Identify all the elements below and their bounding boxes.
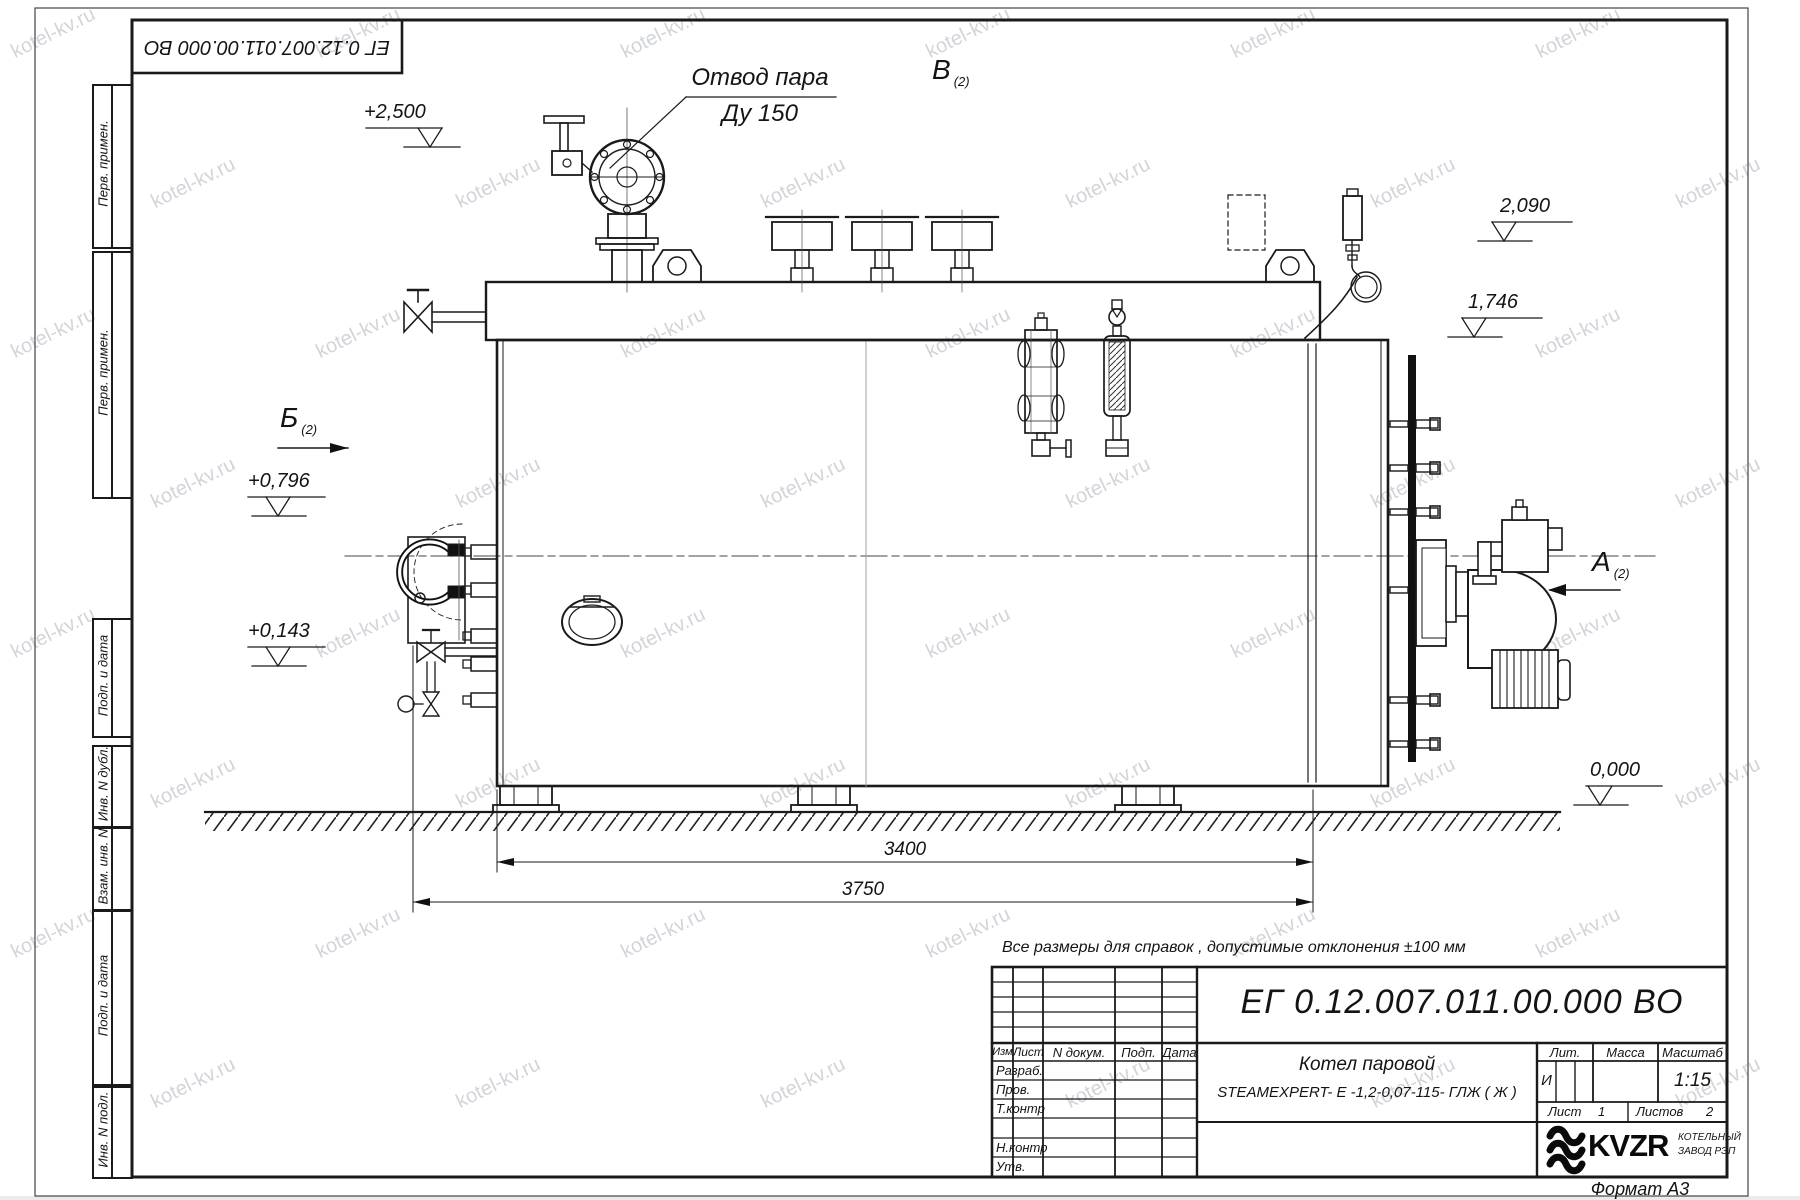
tb-list-value: 1 bbox=[1598, 1104, 1605, 1119]
dim-3750: 3750 bbox=[813, 879, 913, 901]
format-label: Формат А3 bbox=[1540, 1179, 1740, 1200]
tb-doc-number: ЕГ 0.12.007.011.00.000 ВО bbox=[1200, 983, 1724, 1022]
margin-label-perv-primen-2: Перв. примен. bbox=[96, 313, 111, 433]
tb-col-data: Дата bbox=[1162, 1045, 1197, 1060]
burner-assembly bbox=[1416, 500, 1570, 708]
margin-label-inv-podl: Инв. N подл. bbox=[96, 1070, 111, 1190]
kvzr-logo-text: KVZR bbox=[1588, 1128, 1668, 1164]
tb-product-name-line2: STEAMEXPERT- Е -1,2-0,07-115- ГЛЖ ( Ж ) bbox=[1199, 1084, 1535, 1101]
elevation-2500: +2,500 bbox=[364, 101, 426, 124]
elevation-0796: +0,796 bbox=[248, 470, 310, 493]
callout-steam-outlet-line2: Ду 150 bbox=[660, 100, 860, 128]
tb-listov-label: Листов bbox=[1636, 1104, 1683, 1119]
tb-row-utv: Утв. bbox=[996, 1159, 1026, 1174]
boiler-shell bbox=[486, 282, 1388, 786]
view-label-a: А(2) bbox=[1592, 546, 1627, 578]
view-label-v: В(2) bbox=[932, 54, 967, 86]
support-feet bbox=[493, 786, 1181, 812]
water-level-column bbox=[1018, 313, 1071, 457]
manhole bbox=[562, 596, 622, 645]
drawing-sheet: { "watermark": {"text": "kotel-kv.ru"}, … bbox=[0, 0, 1800, 1200]
tb-col-list: Лист bbox=[1013, 1045, 1043, 1059]
ground bbox=[205, 812, 1560, 831]
reference-note: Все размеры для справок , допустимые отк… bbox=[1002, 939, 1466, 957]
kvzr-logo-sub2: ЗАВОД РЭП bbox=[1678, 1146, 1735, 1157]
view-a-letter: А bbox=[1592, 546, 1611, 577]
dim-3400: 3400 bbox=[855, 839, 955, 861]
tb-lit-header: Лит. bbox=[1537, 1045, 1593, 1060]
view-b-sub: (2) bbox=[301, 422, 317, 437]
elevation-1746: 1,746 bbox=[1468, 291, 1518, 314]
callout-steam-outlet-line1: Отвод пара bbox=[660, 64, 860, 92]
gauge-glass bbox=[1104, 300, 1130, 456]
tb-lit-value: И bbox=[1537, 1072, 1556, 1089]
margin-label-perv-primen-1: Перв. примен. bbox=[96, 104, 111, 224]
tb-massa-header: Масса bbox=[1593, 1045, 1658, 1060]
tb-col-podp: Подп. bbox=[1115, 1045, 1162, 1060]
tb-row-prov: Пров. bbox=[996, 1082, 1030, 1097]
view-b-letter: Б bbox=[280, 402, 298, 433]
tb-row-nkontr: Н.контр bbox=[996, 1140, 1047, 1155]
kvzr-logo-sub1: КОТЕЛЬНЫЙ bbox=[1678, 1132, 1741, 1143]
view-v-letter: В bbox=[932, 54, 951, 85]
tb-product-name-line1: Котел паровой bbox=[1197, 1054, 1537, 1076]
top-stamp-doc-number: ЕГ 0.12.007.011.00.000 ВО bbox=[132, 20, 402, 73]
safety-valves bbox=[766, 210, 998, 292]
tb-masshtab-header: Масштаб bbox=[1658, 1045, 1727, 1060]
tb-row-tkontr: Т.контр bbox=[996, 1101, 1045, 1116]
steam-outlet-valve bbox=[544, 108, 664, 292]
view-label-b: Б(2) bbox=[280, 402, 314, 434]
tb-listov-value: 2 bbox=[1706, 1104, 1713, 1119]
tb-row-razrab: Разраб. bbox=[996, 1063, 1043, 1078]
tb-masshtab-value: 1:15 bbox=[1658, 1070, 1727, 1092]
elevation-2090: 2,090 bbox=[1500, 195, 1550, 218]
margin-label-vzam-inv: Взам. инв. N bbox=[96, 807, 111, 927]
dimension-lines bbox=[413, 646, 1313, 912]
lifting-lugs bbox=[653, 250, 1314, 282]
tb-col-ndoc: N докум. bbox=[1043, 1045, 1115, 1060]
kvzr-coil-icon bbox=[1550, 1129, 1582, 1171]
dashed-outline-box bbox=[1228, 195, 1265, 250]
tb-list-label: Лист bbox=[1548, 1104, 1581, 1119]
pressure-gauge bbox=[1305, 189, 1381, 338]
view-v-sub: (2) bbox=[954, 74, 970, 89]
view-a-sub: (2) bbox=[1614, 566, 1630, 581]
elevation-marks bbox=[248, 128, 1662, 805]
tb-col-izm: Изм bbox=[992, 1046, 1013, 1058]
margin-label-podp-data-2: Подп. и дата bbox=[96, 936, 111, 1056]
margin-label-podp-data-1: Подп. и дата bbox=[96, 616, 111, 736]
elevation-0000: 0,000 bbox=[1590, 759, 1640, 782]
elevation-0143: +0,143 bbox=[248, 620, 310, 643]
